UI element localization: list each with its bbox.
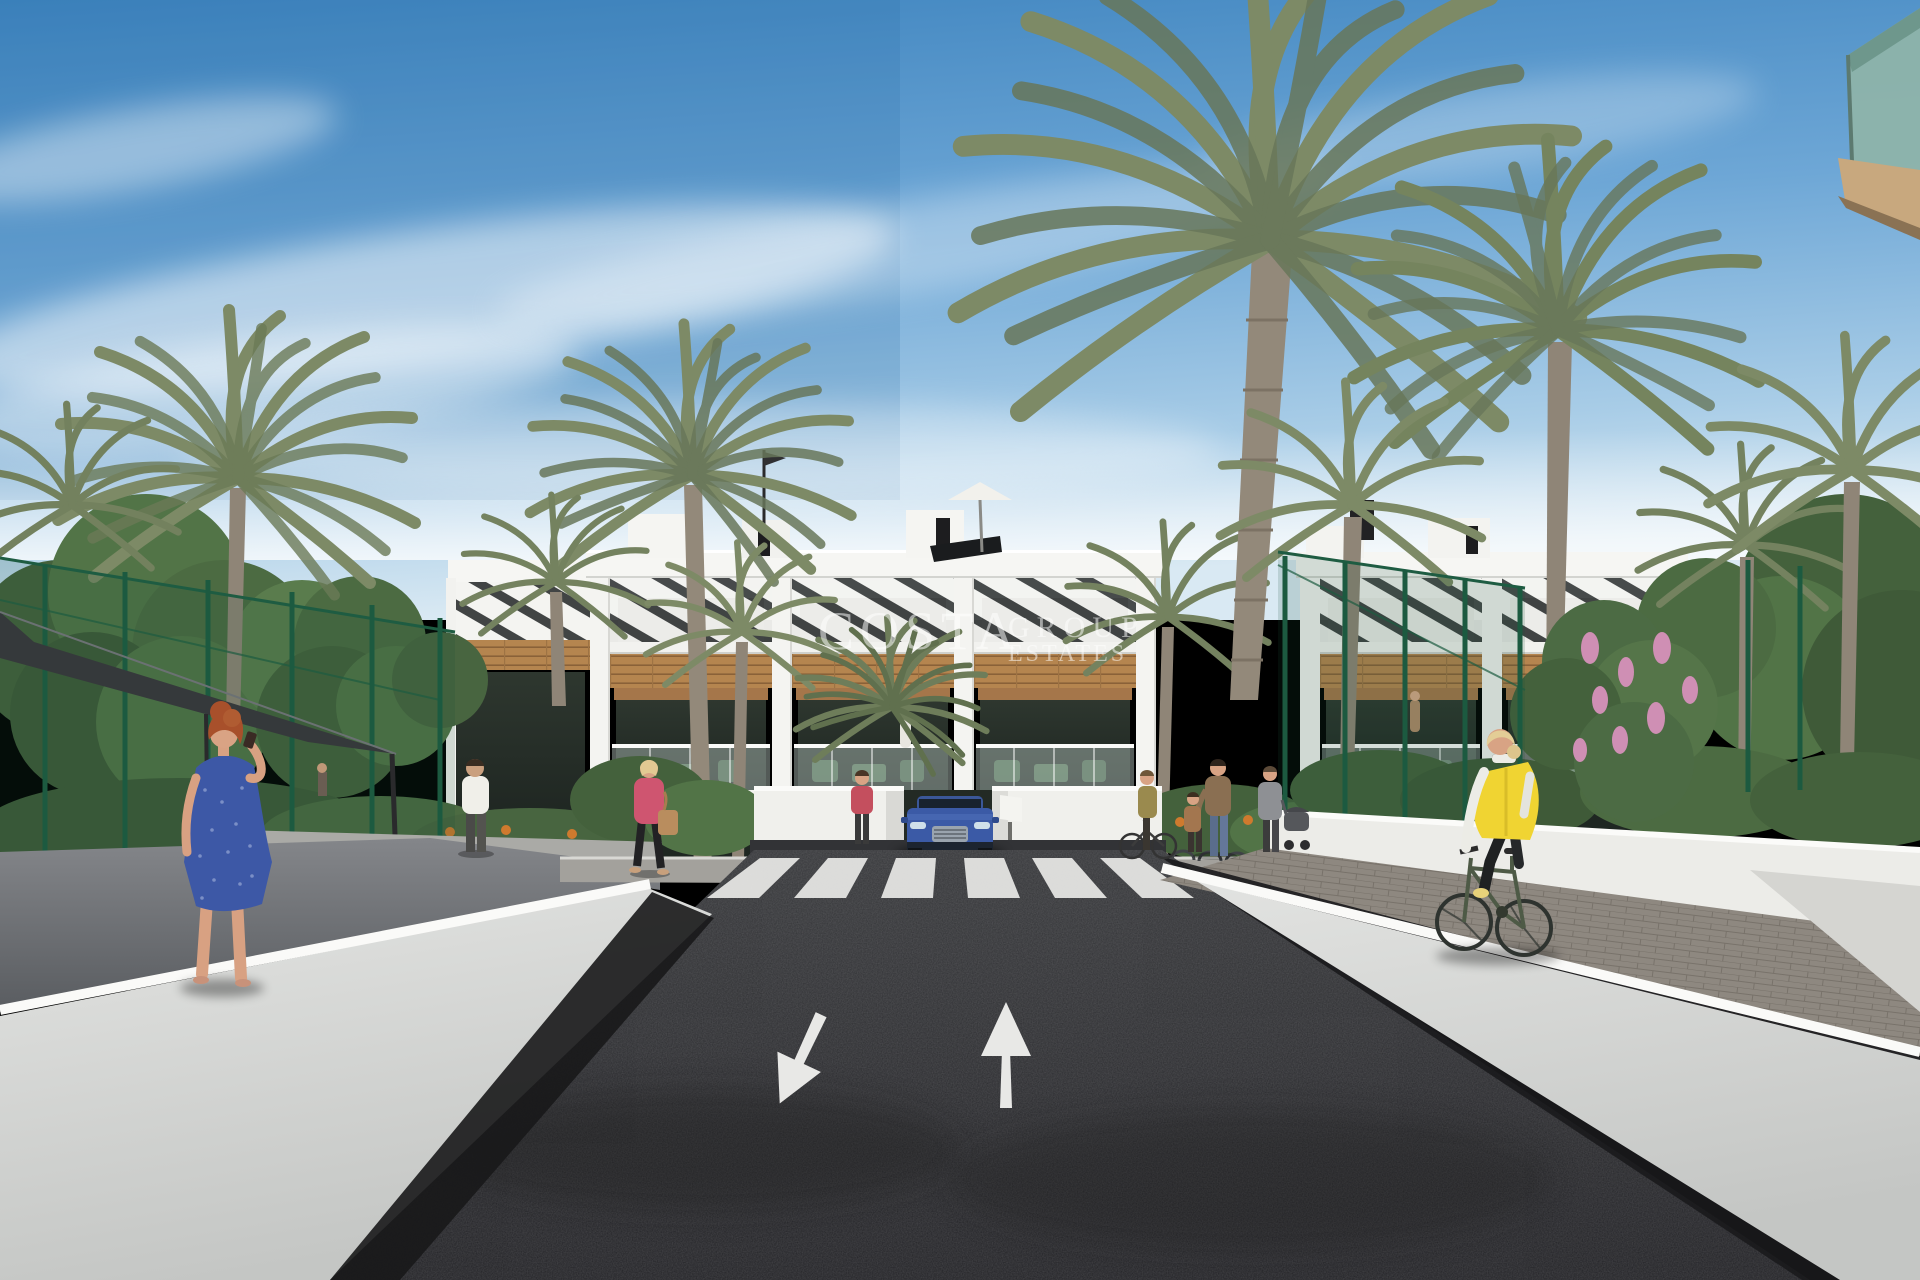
pedestrian-distant xyxy=(317,763,327,796)
architectural-render: COSTA GROUP ESTATES xyxy=(0,0,1920,1280)
